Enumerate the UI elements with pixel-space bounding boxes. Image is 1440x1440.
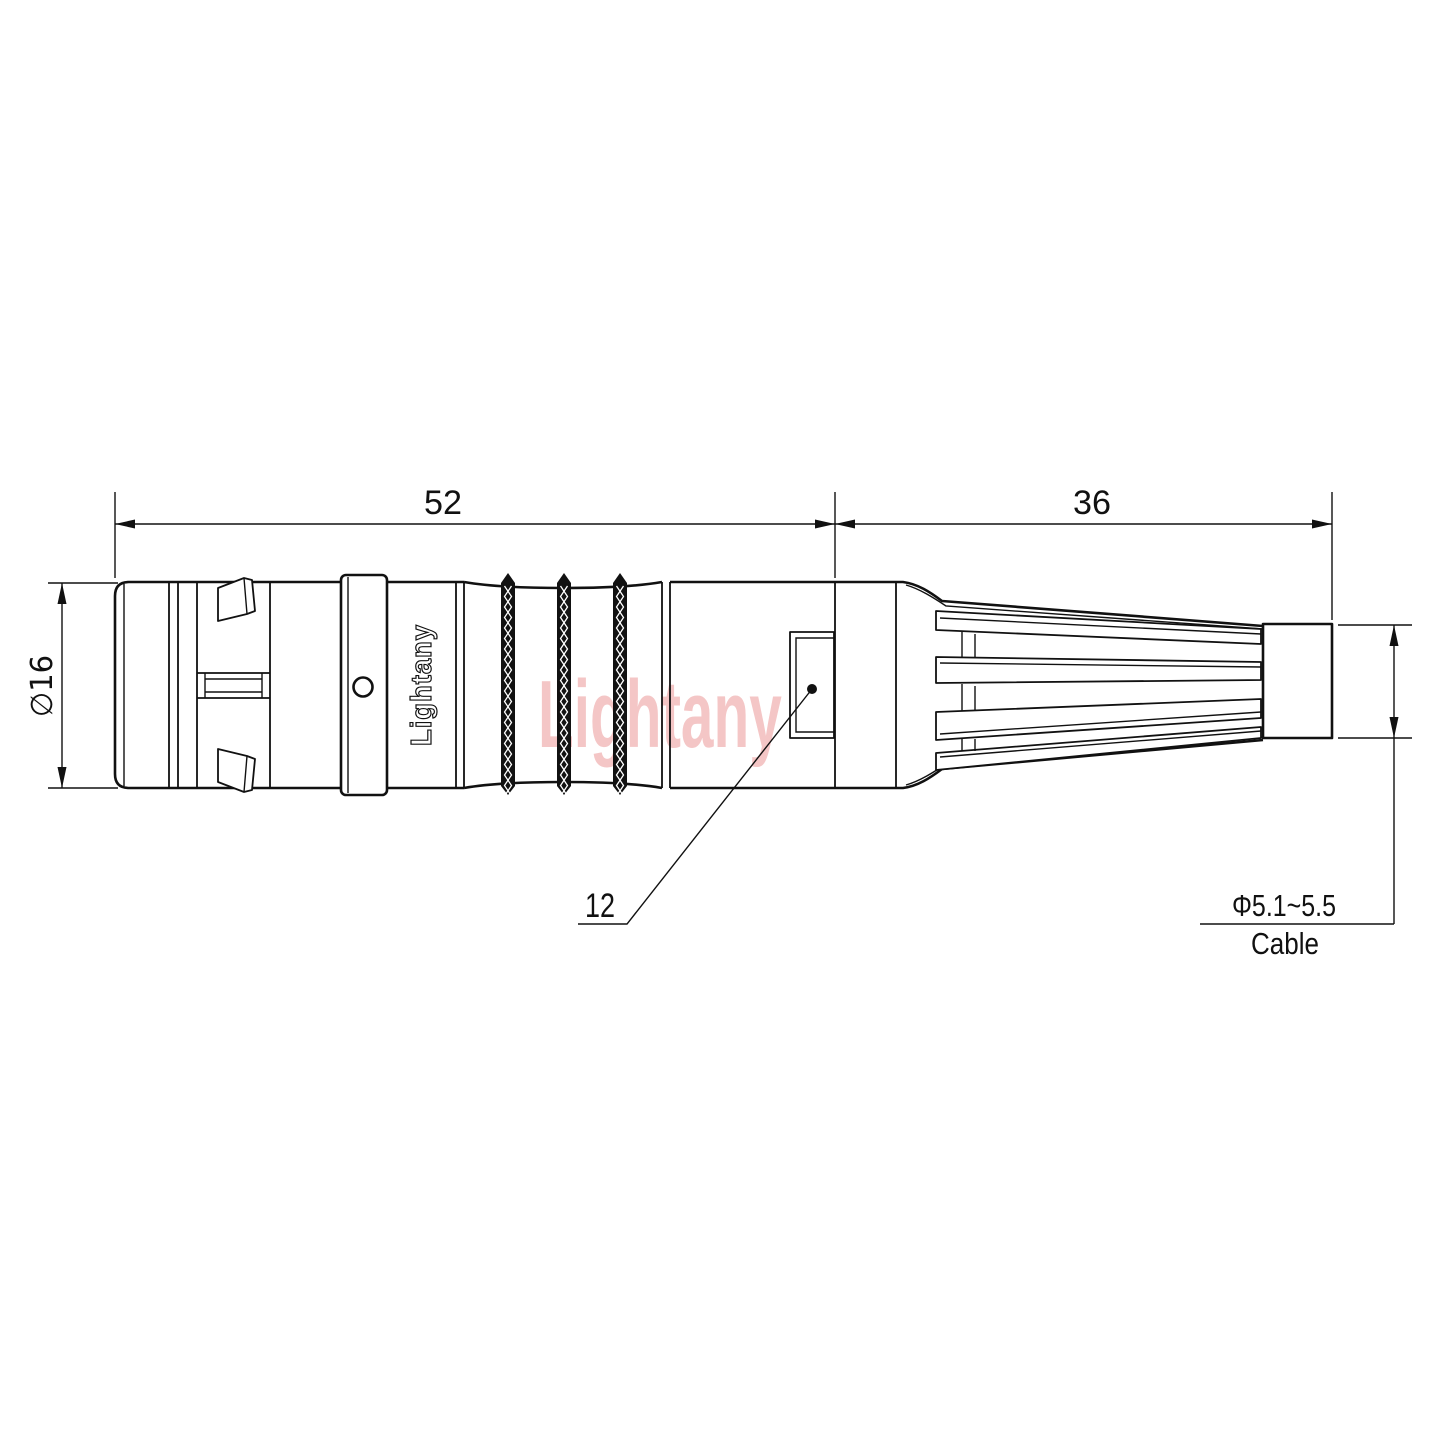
- dimension-body-diameter: ∅16: [25, 583, 118, 788]
- knurl-band: [557, 573, 571, 796]
- cable-ferrule: [1263, 624, 1332, 738]
- branded-sleeve: Lightany: [387, 582, 464, 788]
- ring-hole: [354, 678, 373, 697]
- dim-label-dia16: ∅16: [25, 655, 60, 717]
- body-brand-text: Lightany: [406, 624, 438, 746]
- dimension-front-length: 52: [115, 484, 835, 578]
- latch-tab-bottom: [218, 749, 255, 792]
- technical-drawing-page: Lightany Lightany: [0, 0, 1440, 1440]
- dim-label-52: 52: [424, 484, 462, 522]
- watermark-text: Lightany: [538, 660, 782, 767]
- knurl-band: [501, 573, 515, 796]
- front-shell: [115, 578, 341, 792]
- knurl-band: [613, 573, 627, 796]
- connector-drawing: Lightany Lightany: [0, 0, 1440, 1440]
- locking-ring: [341, 575, 387, 795]
- latch-tab-top: [218, 578, 255, 621]
- dim-label-36: 36: [1073, 484, 1111, 522]
- dim-label-12: 12: [585, 887, 615, 925]
- dim-label-cable-caption: Cable: [1251, 926, 1319, 961]
- dimension-boot-length: 36: [835, 484, 1332, 620]
- dim-label-cable-range: Φ5.1~5.5: [1232, 888, 1336, 923]
- strain-relief-boot: [896, 582, 1263, 788]
